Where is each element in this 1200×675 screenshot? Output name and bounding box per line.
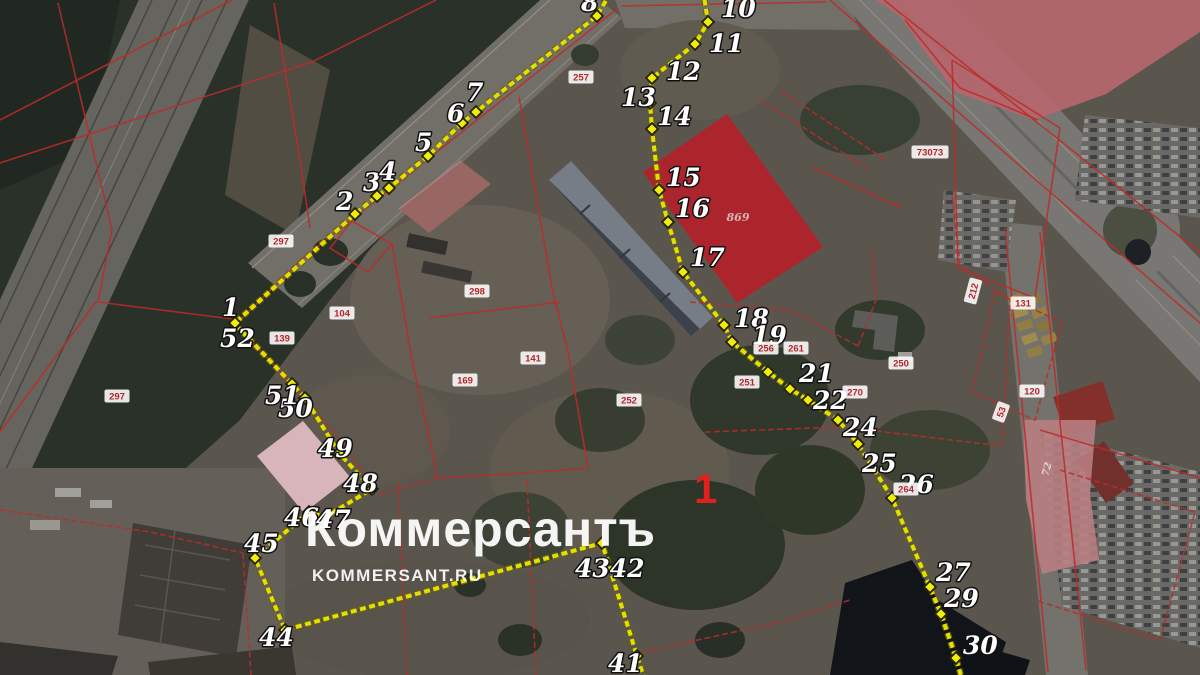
parcel-label-270: 270 [843, 386, 868, 399]
boundary-point-number-24: 24 [842, 413, 878, 442]
boundary-point-number-41: 41 [608, 649, 643, 675]
parcel-label-text: 139 [274, 334, 290, 345]
parcel-label-252: 252 [617, 394, 642, 407]
parcel-label-261: 261 [784, 342, 809, 355]
boundary-point-number-14: 14 [657, 102, 692, 131]
parcel-label-text: 251 [739, 378, 756, 389]
parcel-label-text: 270 [847, 388, 863, 399]
boundary-point-number-7: 7 [466, 78, 484, 107]
boundary-point-number-6: 6 [447, 99, 464, 128]
boundary-point-number-51: 51 [265, 381, 300, 410]
parcel-label-text: 257 [573, 73, 589, 84]
parcel-label-text: 131 [1015, 299, 1032, 310]
boundary-point-number-3: 3 [363, 168, 380, 197]
boundary-point-number-1: 1 [222, 293, 239, 322]
parcel-label-264: 264 [894, 483, 919, 496]
boundary-point-number-8: 8 [580, 0, 598, 17]
parcel-label-text: 120 [1024, 387, 1040, 398]
boundary-point-number-11: 11 [709, 29, 744, 58]
boundary-point-number-2: 2 [335, 187, 353, 216]
parcel-label-169: 169 [453, 374, 478, 387]
parcel-label-73073: 73073 [912, 146, 949, 159]
boundary-point-number-12: 12 [666, 57, 701, 86]
boundary-point-number-48: 48 [343, 469, 378, 498]
boundary-point-number-52: 52 [220, 324, 255, 353]
boundary-point-number-13: 13 [621, 83, 656, 112]
boundary-point-number-30: 30 [963, 631, 998, 660]
boundary-point-number-17: 17 [690, 243, 725, 272]
area-number-label: 1 [694, 465, 717, 512]
boundary-point-number-21: 21 [798, 359, 834, 388]
parcel-label-104: 104 [330, 307, 355, 320]
boundary-point-number-5: 5 [415, 128, 432, 157]
parcel-label-139: 139 [270, 332, 295, 345]
parcel-label-250: 250 [889, 357, 914, 370]
boundary-point-number-4: 4 [379, 157, 396, 186]
parcel-label-text: 297 [273, 237, 289, 248]
parcel-label-text: 73073 [917, 148, 943, 159]
boundary-point-number-29: 29 [943, 584, 979, 613]
boundary-point-number-27: 27 [935, 558, 971, 587]
parcel-label-257: 257 [569, 71, 594, 84]
parcel-label-251: 251 [735, 376, 760, 389]
parcel-label-text: 141 [525, 354, 542, 365]
boundary-point-number-10: 10 [721, 0, 756, 23]
parcel-label-298: 298 [465, 285, 490, 298]
parcel-label-297: 297 [269, 235, 294, 248]
parcel-label-297: 297 [105, 390, 130, 403]
boundary-point-number-45: 45 [244, 529, 279, 558]
boundary-point-number-4342: 4342 [575, 554, 645, 583]
parcel-label-text: 261 [788, 344, 805, 355]
boundary-point-number-49: 49 [318, 434, 353, 463]
parcel-label-131: 131 [1011, 297, 1036, 310]
parcel-label-text: 250 [893, 359, 909, 370]
parcel-label-text: 264 [898, 485, 915, 496]
kommersant-url-watermark: KOMMERSANT.RU [312, 566, 483, 586]
boundary-point-number-15: 15 [666, 163, 701, 192]
parcel-label-text: 298 [469, 287, 485, 298]
parcel-label-text: 252 [621, 396, 637, 407]
parcel-label-text: 256 [758, 344, 774, 355]
boundary-point-number-16: 16 [675, 194, 710, 223]
satellite-map-image: 4143424445464748495051521234567810111213… [0, 0, 1200, 675]
boundary-point-number-25: 25 [861, 449, 897, 478]
parcel-label-141: 141 [521, 352, 546, 365]
parcel-label-120: 120 [1020, 385, 1045, 398]
boundary-point-number-44: 44 [259, 623, 294, 652]
parcel-label-256: 256 [754, 342, 779, 355]
boundary-point-number-22: 22 [812, 386, 848, 415]
zone-label-869: 869 [727, 211, 750, 224]
map-canvas: 4143424445464748495051521234567810111213… [0, 0, 1200, 675]
parcel-label-text: 104 [334, 309, 351, 320]
parcel-label-text: 169 [457, 376, 473, 387]
parcel-label-text: 297 [109, 392, 125, 403]
kommersant-watermark: Коммерсантъ [305, 500, 656, 558]
